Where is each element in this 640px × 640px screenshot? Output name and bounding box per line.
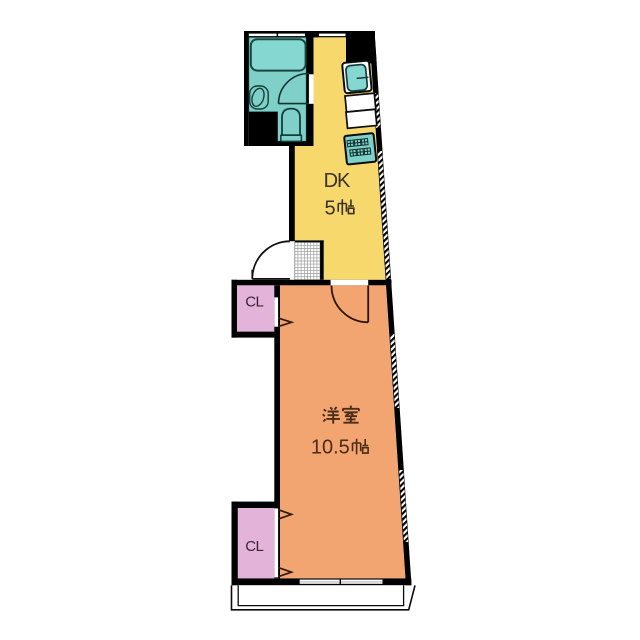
- svg-text:5: 5: [324, 198, 335, 220]
- svg-text:10.5: 10.5: [311, 436, 350, 458]
- svg-text:CL: CL: [245, 538, 263, 555]
- svg-text:CL: CL: [245, 293, 263, 310]
- svg-text:DK: DK: [324, 170, 351, 192]
